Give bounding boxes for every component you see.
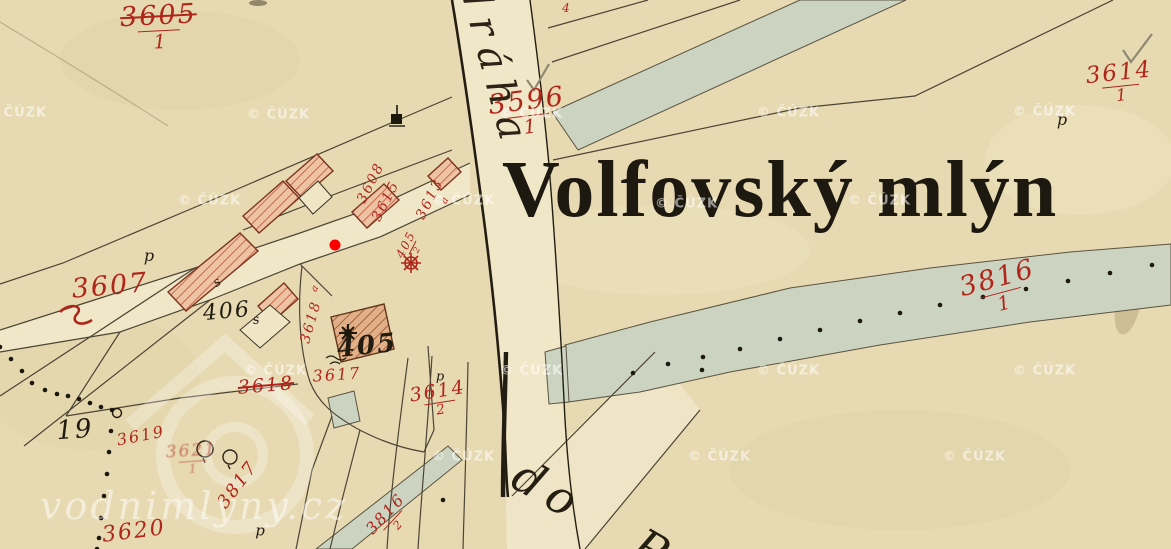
stream-junction <box>545 346 569 404</box>
stream-upper <box>552 0 906 150</box>
chapel-icon <box>389 105 405 126</box>
map-title: Volfovský mlýn <box>502 150 1058 230</box>
site-watermark: vodnimlyny.cz <box>40 484 348 528</box>
map-canvas[interactable]: 3605135961361413607381613608361536134052… <box>0 0 1171 549</box>
red-gear-icon <box>401 253 421 273</box>
map-artwork <box>0 0 1171 549</box>
location-marker-dot[interactable] <box>330 240 341 251</box>
building <box>243 181 299 233</box>
millrace-patch <box>328 391 360 428</box>
